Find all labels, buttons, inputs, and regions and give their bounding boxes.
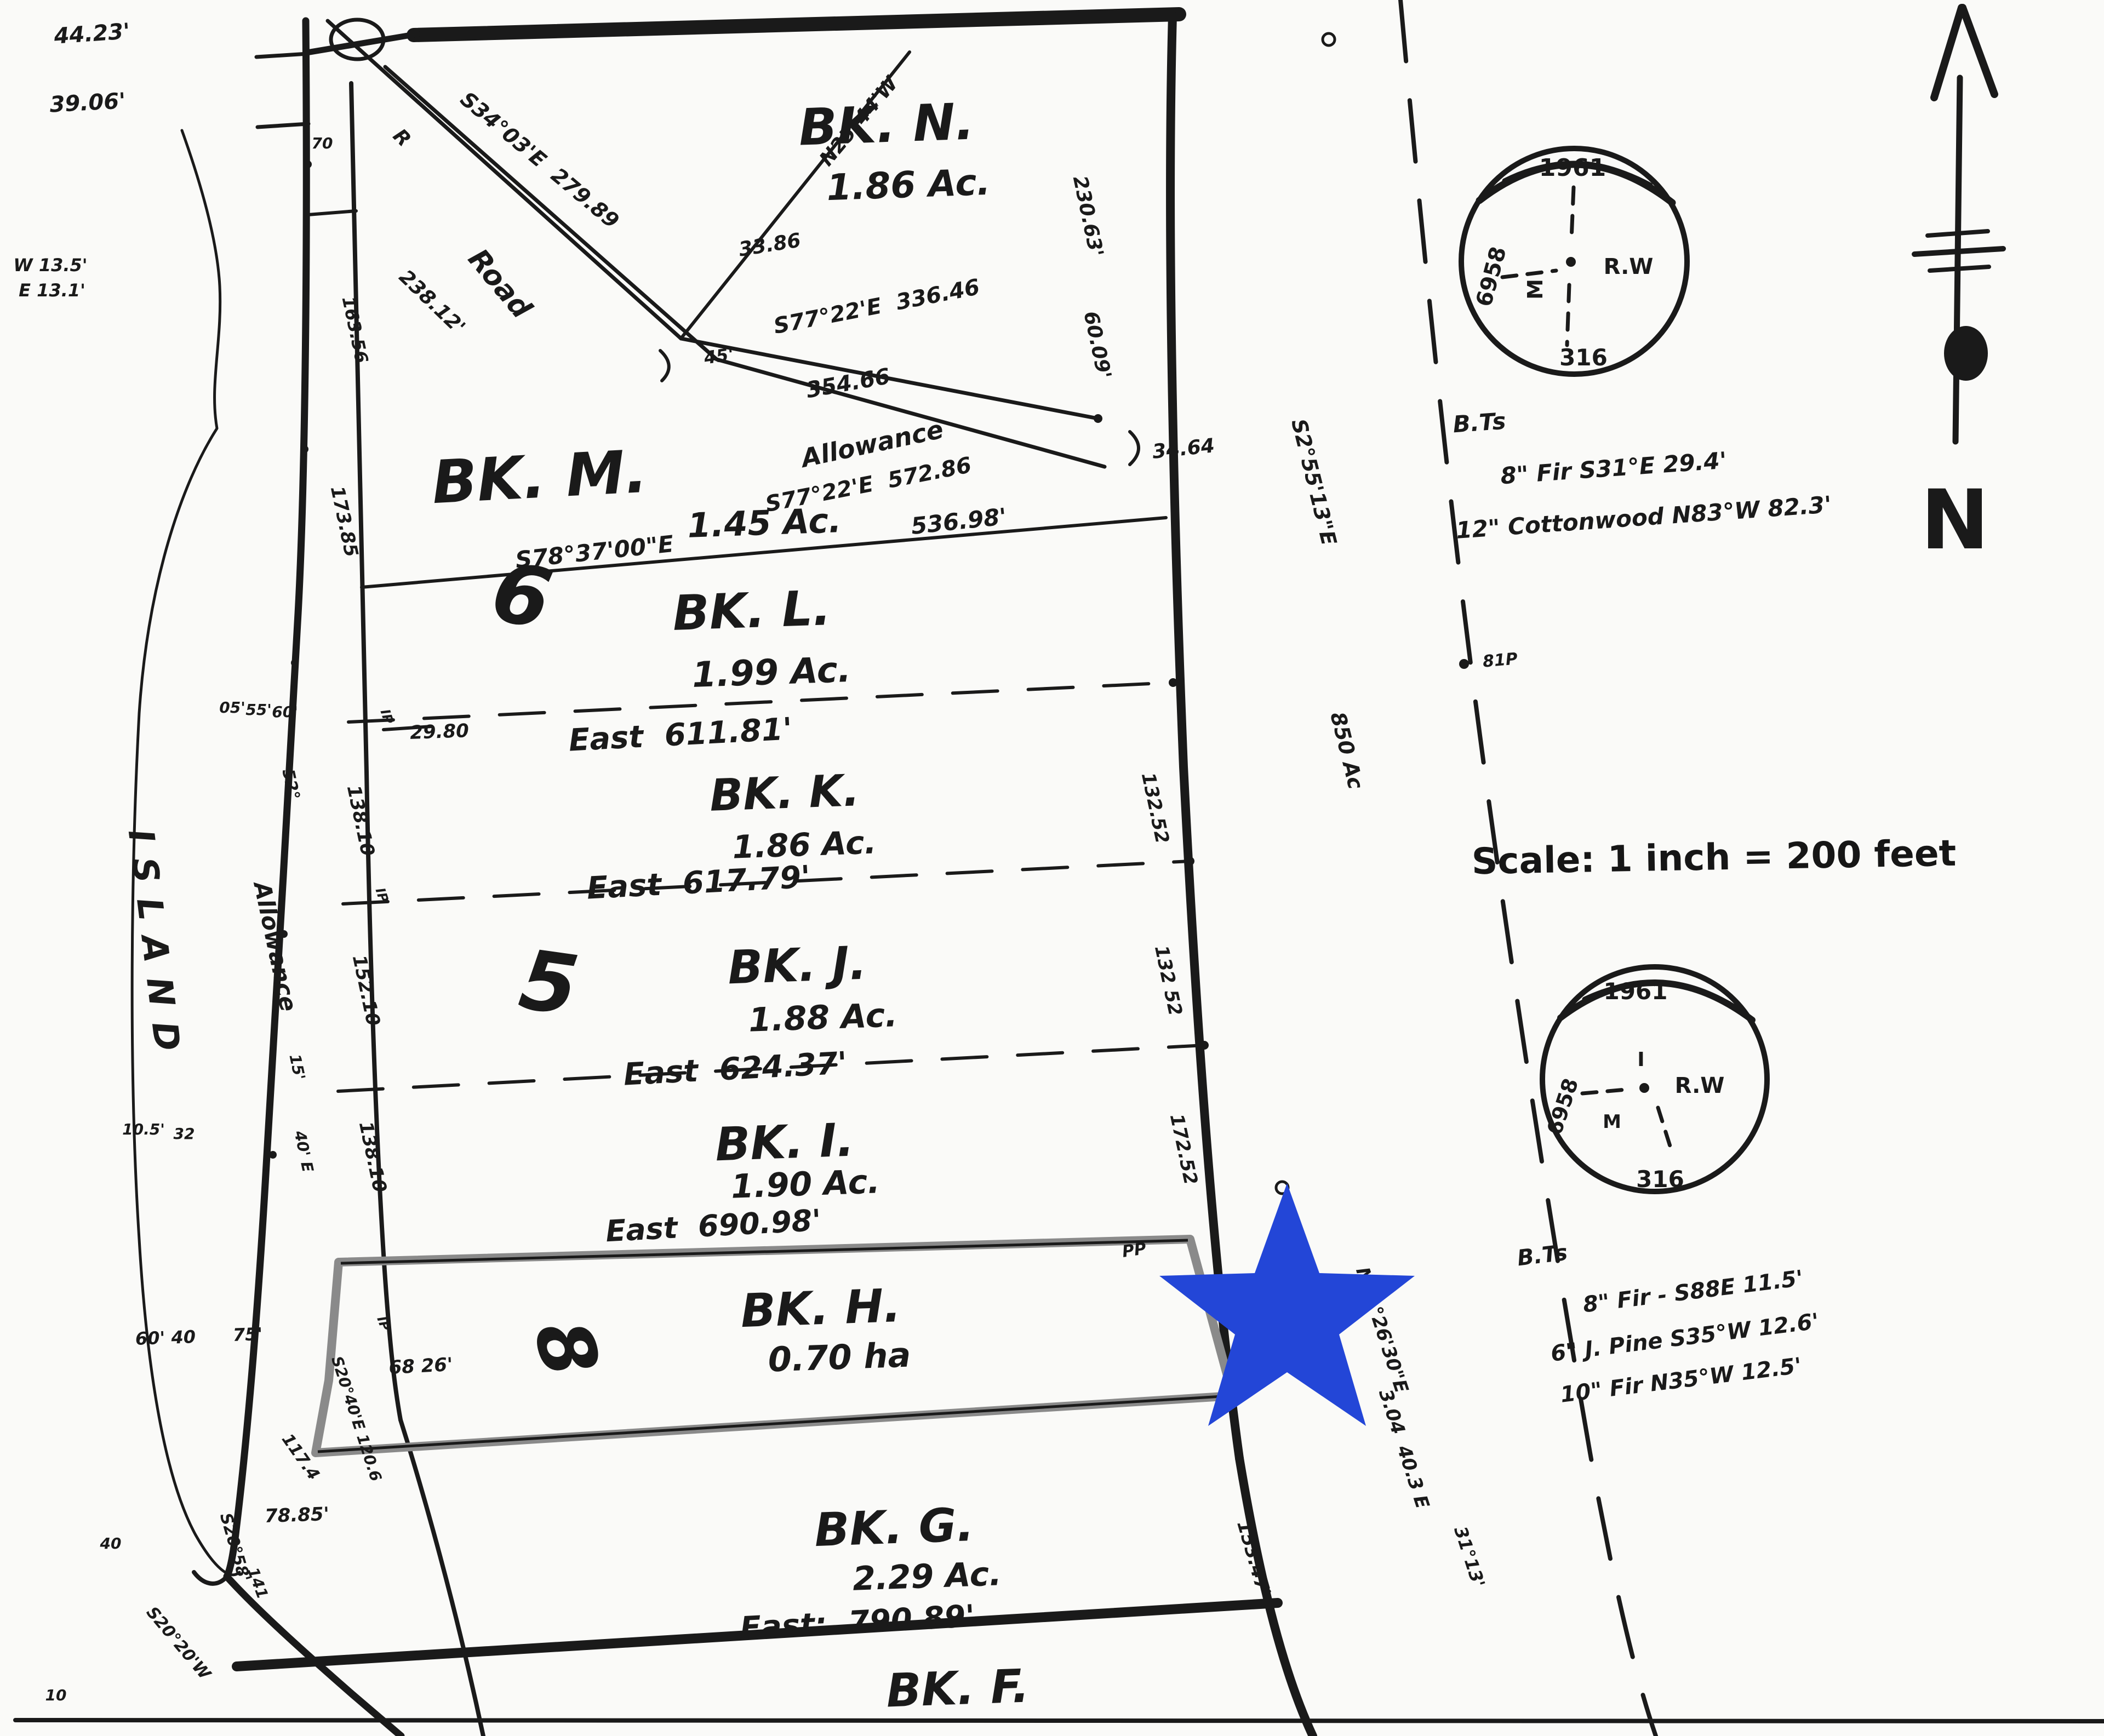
island-label: ISLAND [123, 827, 187, 1068]
bearing-tree-title: B.Ts [1516, 1242, 1569, 1270]
road-label: R [389, 125, 414, 150]
measurement-label: 05' [219, 700, 245, 715]
pin-label: IP [378, 708, 395, 726]
pin-label: 81P [1482, 651, 1518, 670]
bearing-label: S34°03'E 279.89 [457, 88, 622, 232]
measurement-label: 141 [245, 1566, 270, 1601]
dimension-label: East 611.81' [568, 714, 793, 756]
measurement-label: 52° [279, 767, 301, 801]
measurement-label: 33.86 [737, 231, 802, 260]
measurement-label: 173.85 [328, 484, 361, 558]
measurement-label: 55' [245, 702, 272, 718]
measurement-label: 32 [174, 1126, 195, 1142]
lot-number: 6 [485, 550, 558, 642]
measurement-label: 152.10 [350, 953, 383, 1027]
bearing-tree-line: 12" Cottonwood N83°W 82.3' [1455, 493, 1832, 542]
measurement-label: 354.66 [805, 365, 892, 402]
measurement-label: 70 [312, 136, 333, 151]
dimension-label: East 690.98' [605, 1206, 822, 1247]
north-arrow-letter: N [1920, 479, 1989, 562]
measurement-label: 39.06' [49, 90, 127, 116]
measurement-label: W 13.5' [13, 256, 87, 274]
measurement-label: 78.85' [264, 1505, 329, 1526]
area-label: 2.29 Ac. [852, 1557, 1002, 1595]
measurement-label: 34.64 [1151, 436, 1215, 462]
bearing-label: S20°20'W [143, 1604, 213, 1683]
lot-number: 8 [522, 1314, 609, 1384]
area-label: 1.88 Ac. [748, 999, 898, 1036]
dimension-label: East 624.37' [623, 1048, 848, 1090]
measurement-label: 15' [287, 1053, 307, 1081]
measurement-label: 163.56 [340, 295, 371, 364]
monument-mark: 6958 [1544, 1076, 1582, 1137]
measurement-label: 29.80 [410, 721, 470, 742]
measurement-label: PP [1121, 1241, 1147, 1261]
bearing-label: N81°26'30"E [1353, 1265, 1411, 1395]
block-label: BK. G. [814, 1502, 975, 1553]
measurement-label: 60' 40 [135, 1328, 196, 1348]
bearing-label: S2°55'13"E [1288, 417, 1340, 547]
bearing-tree-line: 8" Fir - S88E 11.5' [1582, 1268, 1804, 1316]
block-label: BK. L. [672, 584, 832, 638]
measurement-label: 44.23' [53, 20, 130, 48]
road-label: Road [463, 244, 536, 324]
block-label: BK. N. [798, 96, 975, 153]
monument-mark: I [1637, 1050, 1644, 1070]
bearing-label: S20°40'E 120.6 [329, 1354, 384, 1483]
measurement-label: 75' [232, 1325, 262, 1344]
monument-year: 1961 [1604, 980, 1668, 1003]
measurement-label: 10 [45, 1688, 67, 1703]
measurement-label: 10.5' [122, 1122, 165, 1137]
bearing-tree-line: 10" Fir N35°W 12.5' [1559, 1355, 1803, 1406]
measurement-label: 60.09' [1080, 310, 1113, 381]
measurement-label: 3.04 40.3 E [1376, 1387, 1432, 1511]
block-label: BK. J. [727, 940, 867, 991]
dimension-label: East 617.79' [586, 862, 811, 904]
measurement-label: 132 52 [1152, 944, 1185, 1017]
measurement-label: 153.47' [1234, 1519, 1273, 1599]
block-label: BK. K. [709, 769, 860, 817]
block-label: BK. H. [740, 1282, 901, 1334]
measurement-label: 60' [272, 704, 298, 720]
area-label: 1.45 Ac. [687, 503, 842, 543]
measurement-label: 68 26' [388, 1355, 453, 1377]
monument-mark: 316 [1559, 346, 1608, 369]
measurement-label: 230.63' [1070, 174, 1106, 259]
monument-mark: M [1525, 279, 1546, 300]
area-label: 1.86 Ac. [826, 164, 991, 206]
bearing-tree-line: 8" Fir S31°E 29.4' [1500, 449, 1728, 488]
monument-mark: 6958 [1473, 244, 1510, 309]
area-label: 1.99 Ac. [691, 652, 851, 693]
measurement-label: 138.10 [344, 783, 378, 857]
block-label: BK. I. [714, 1117, 855, 1168]
measurement-label: 132.52 [1139, 771, 1172, 845]
measurement-label: 45' [703, 345, 735, 366]
area-label: 0.70 ha [768, 1338, 912, 1377]
measurement-label: 238.12' [396, 267, 468, 338]
area-label: 1.90 Ac. [730, 1165, 881, 1203]
survey-plat-page: 44.23'39.06'W 13.5'E 13.1'70RRoadS34°03'… [0, 0, 2104, 1736]
measurement-label: 117.4 [278, 1431, 322, 1483]
measurement-label: E 13.1' [19, 282, 85, 299]
dimension-label: East: 790 89' [739, 1601, 975, 1644]
pin-label: IP [375, 1314, 392, 1332]
scale-label: Scale: 1 inch = 200 feet [1471, 832, 1957, 883]
monument-year: 1961 [1539, 156, 1606, 180]
measurement-label: 40 [100, 1536, 122, 1551]
measurement-label: 850 Ac [1327, 710, 1367, 791]
measurement-label: 40' E [291, 1130, 315, 1174]
monument-mark: M [1603, 1113, 1621, 1131]
block-label: BK. F. [885, 1663, 1030, 1714]
measurement-label: 138.10 [356, 1120, 390, 1194]
bearing-tree-title: B.Ts [1452, 410, 1506, 437]
area-label: 1.86 Ac. [732, 826, 877, 863]
monument-mark: R.W [1675, 1075, 1725, 1097]
measurement-label: 536.98' [910, 505, 1008, 538]
bearing-label: S77°22'E 336.46 [772, 276, 982, 337]
lot-number: 5 [515, 938, 583, 1028]
allowance-label: Allowance [250, 880, 300, 1013]
monument-mark: R.W [1604, 256, 1654, 278]
measurement-label: 172.52 [1167, 1112, 1200, 1186]
block-label: BK. M. [431, 443, 649, 513]
monument-mark: 316 [1636, 1168, 1684, 1191]
pin-label: IP [373, 886, 390, 904]
bearing-label: 31°13' [1451, 1524, 1488, 1589]
